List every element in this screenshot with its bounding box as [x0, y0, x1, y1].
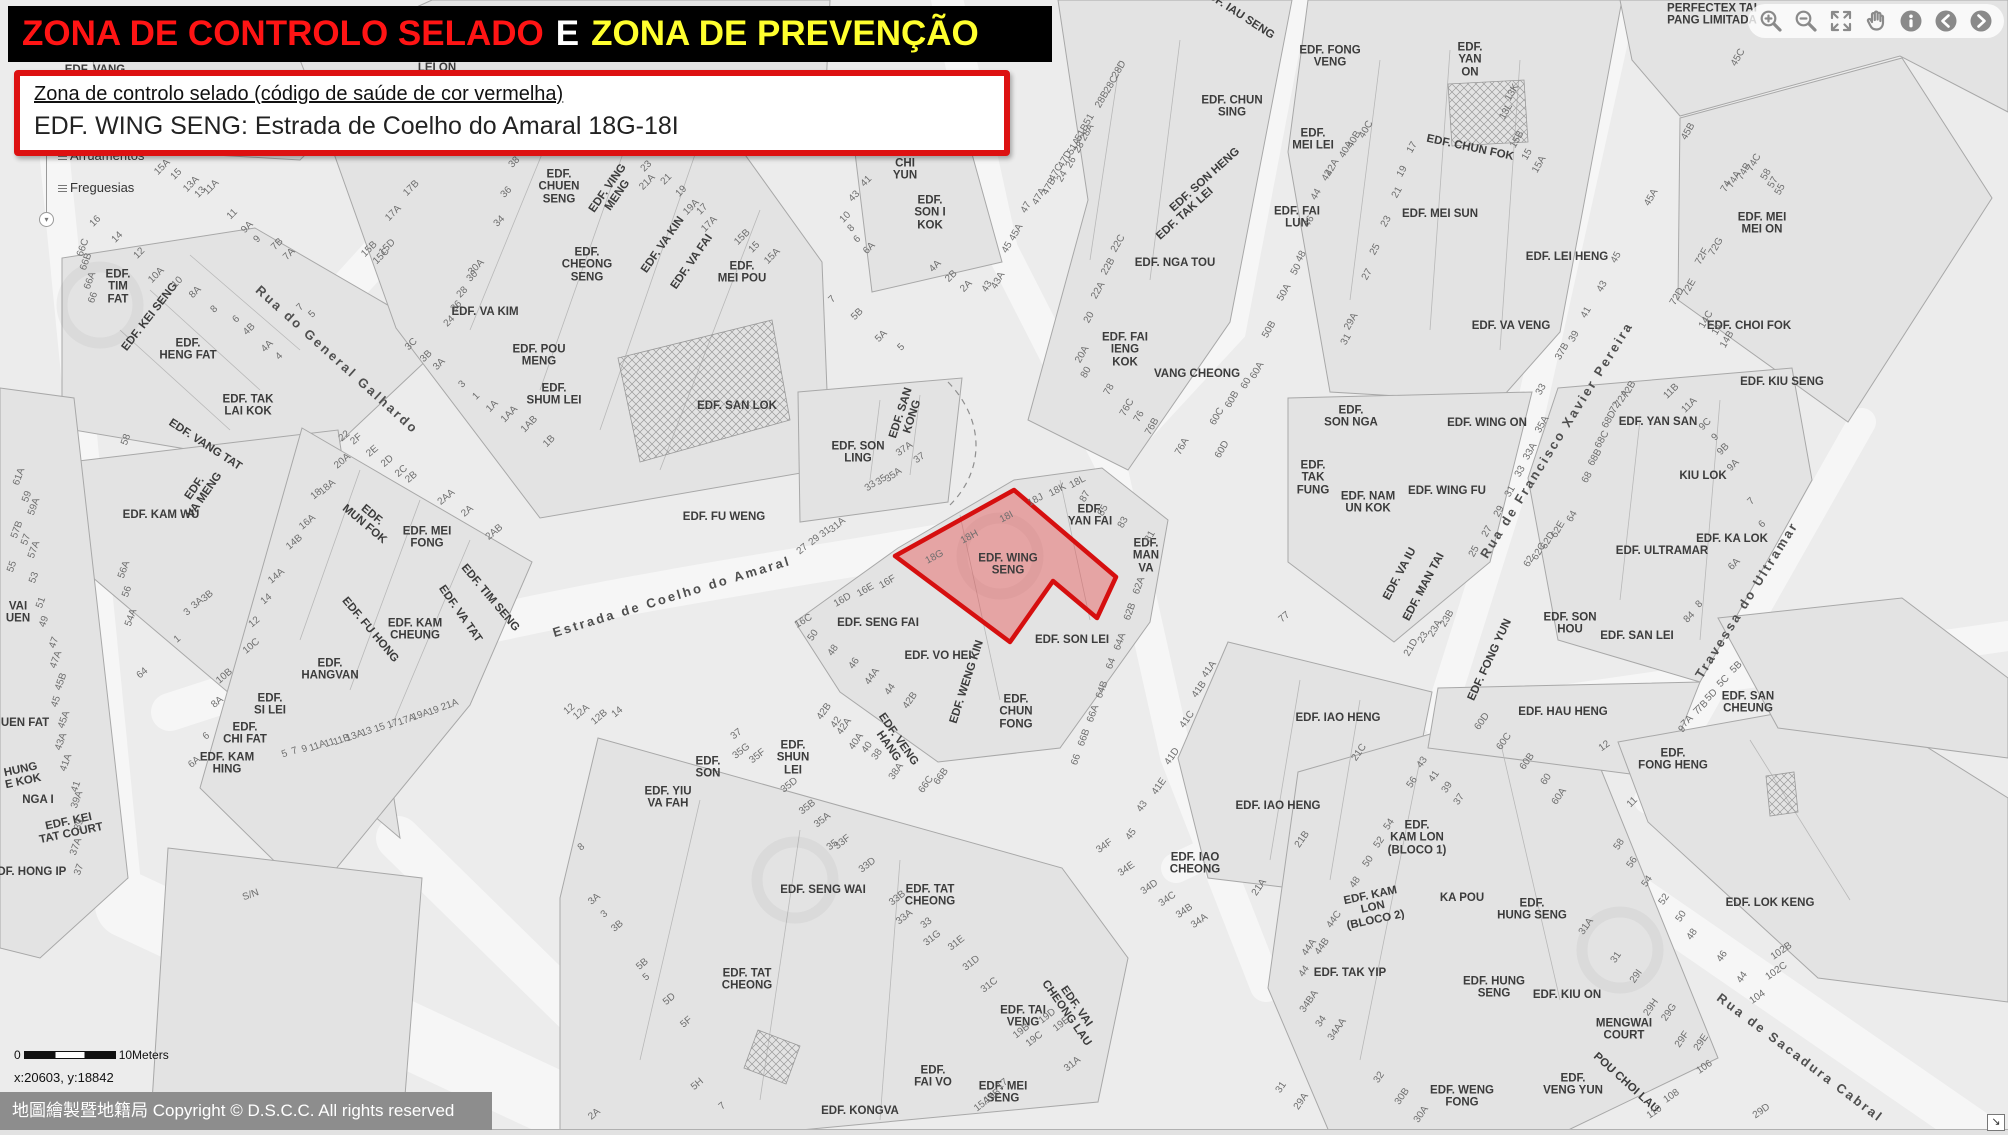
full-extent-button[interactable]: [1828, 8, 1854, 34]
next-extent-button[interactable]: [1968, 8, 1994, 34]
scale-start-label: 0: [14, 1048, 21, 1062]
layer-item-freguesias[interactable]: Freguesias: [58, 180, 134, 195]
collapse-layers-button[interactable]: ▾: [39, 212, 54, 227]
zone-info-box: Zona de controlo selado (código de saúde…: [14, 70, 1010, 156]
map-toolbar: [1748, 4, 2004, 38]
corner-arrow-button[interactable]: ↘: [1987, 1114, 2005, 1131]
zoom-in-button[interactable]: [1758, 8, 1784, 34]
map-canvas[interactable]: [0, 0, 2008, 1134]
title-conjunction: E: [556, 14, 579, 54]
zone-info-address: EDF. WING SENG: Estrada de Coelho do Ama…: [34, 112, 990, 141]
cursor-coordinates: x:20603, y:18842: [14, 1070, 114, 1085]
pan-hand-button[interactable]: [1863, 8, 1889, 34]
copyright-bar: 地圖繪製暨地籍局 Copyright © D.S.C.C. All rights…: [0, 1092, 492, 1130]
previous-extent-button[interactable]: [1933, 8, 1959, 34]
zoom-out-button[interactable]: [1793, 8, 1819, 34]
zone-info-heading: Zona de controlo selado (código de saúde…: [34, 83, 990, 106]
scale-bar-graphic: [24, 1051, 116, 1059]
title-prevention-zone: ZONA DE PREVENÇÃO: [591, 14, 979, 54]
title-sealed-zone: ZONA DE CONTROLO SELADO: [22, 14, 544, 54]
identify-info-button[interactable]: [1898, 8, 1924, 34]
scale-bar: 0 10Meters: [14, 1048, 169, 1062]
page-title: ZONA DE CONTROLO SELADO E ZONA DE PREVEN…: [8, 6, 1052, 62]
scale-end-label: 10Meters: [119, 1048, 169, 1062]
